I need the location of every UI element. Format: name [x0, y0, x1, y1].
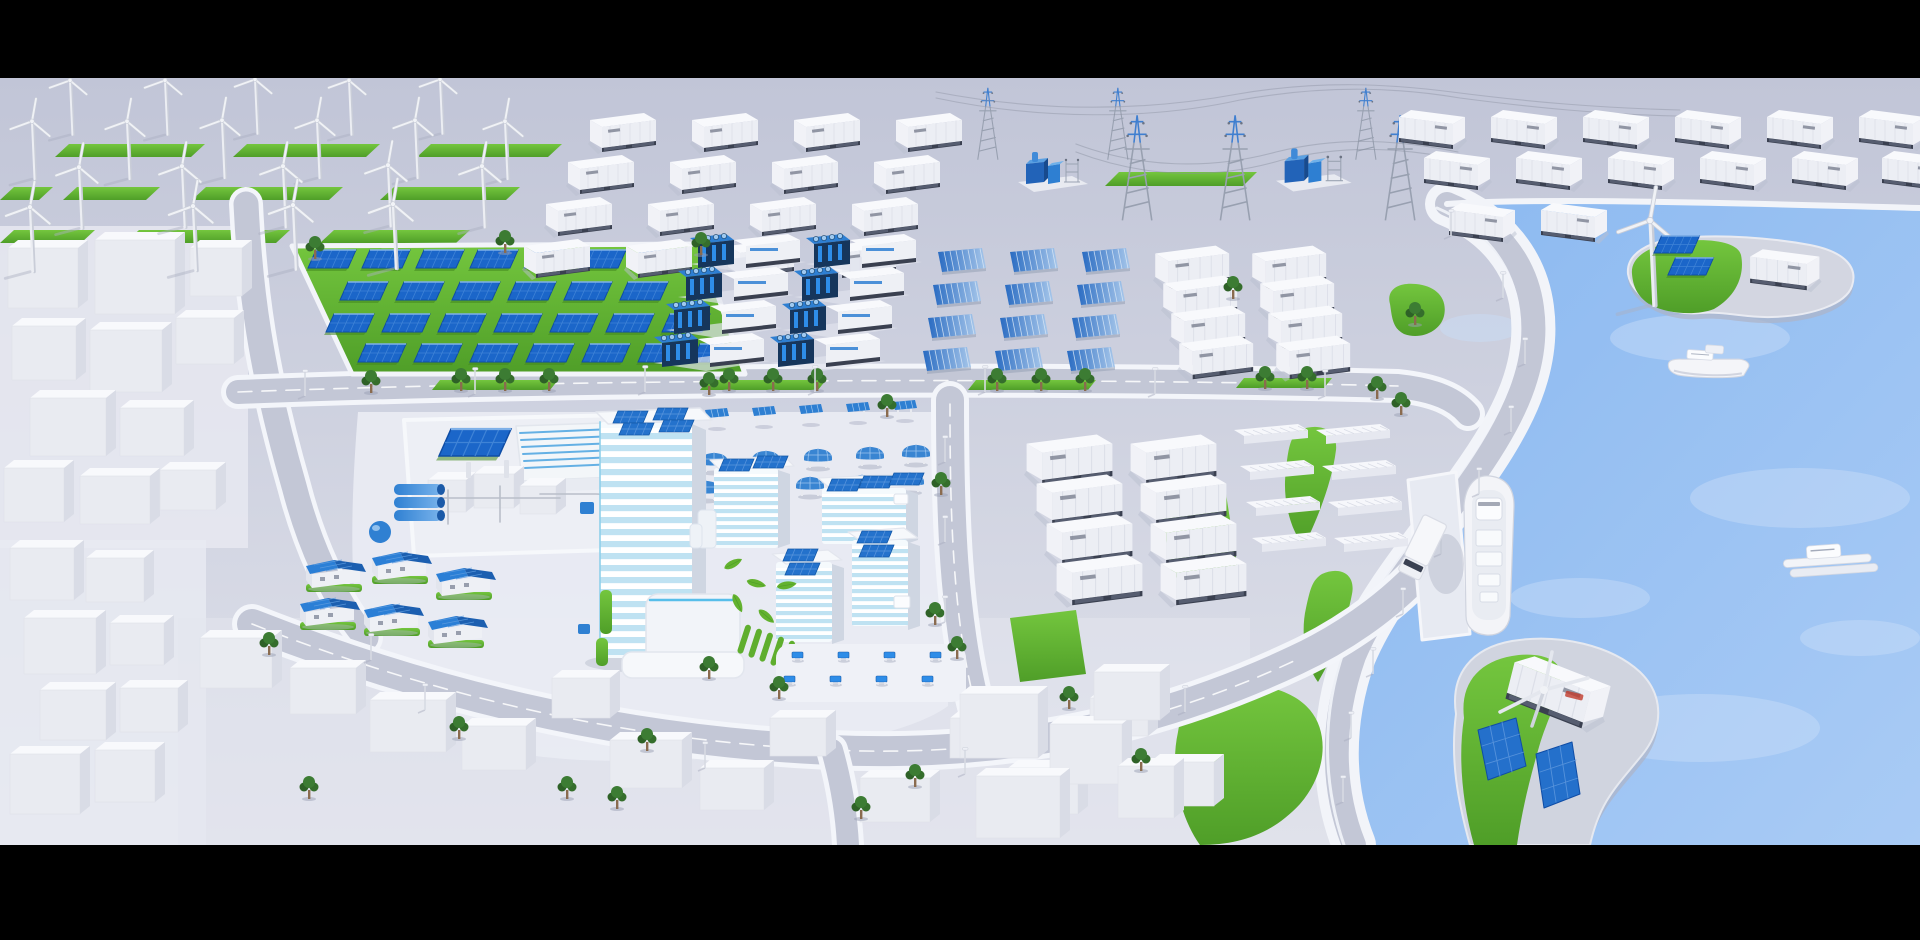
blue-panel-walls-item [1072, 314, 1120, 341]
tower-roof-solar-item [659, 420, 694, 432]
building2-roof-solar-item [753, 456, 788, 468]
tower-entrance [622, 652, 744, 678]
smart-city-render [0, 0, 1920, 940]
tower-roof-solar-item [653, 408, 688, 420]
picnic-tables-item [930, 652, 942, 663]
blue-panel-walls-item [995, 347, 1043, 374]
docked-ship-windows [1478, 502, 1500, 506]
island-south-turbine-hub [1540, 686, 1548, 694]
plant-tanks [394, 484, 442, 521]
building2-roof-solar-item [719, 459, 754, 471]
solar-dome-trees-item [856, 446, 884, 470]
plant-sphere-tank [369, 521, 391, 543]
building5-roofbox [894, 596, 910, 608]
docked-ship-bridge [1476, 498, 1502, 520]
blue-panel-walls-item [1005, 281, 1053, 308]
plant-tank-caps [437, 484, 445, 521]
blue-panel-walls-item [938, 248, 986, 275]
building5-roof-solar-item [857, 531, 892, 543]
picnic-tables-item [838, 652, 850, 663]
solar-dome-trees-item [902, 444, 930, 468]
building4-stripes [776, 568, 832, 639]
picnic-tables-item [922, 676, 934, 687]
building3-roofbox [894, 494, 908, 504]
building3-roof-solar-item [859, 476, 894, 488]
building4-side [832, 564, 844, 644]
building5-side [908, 542, 920, 630]
blue-panel-walls-item [1010, 248, 1058, 275]
scene-canvas [0, 78, 1920, 845]
building5-roof-solar-item [859, 545, 894, 557]
building3-roof-solar-item [889, 473, 924, 485]
tower-roof-solar-item [613, 411, 648, 423]
blue-panel-walls-item [1067, 347, 1115, 374]
solar-dome-trees-item [804, 448, 832, 472]
tower-roof-solar-item [619, 423, 654, 435]
blue-panel-walls-item [1077, 281, 1125, 308]
picnic-tables-item [792, 652, 804, 663]
blue-panel-walls-item [1000, 314, 1048, 341]
storage-yard-lawn-2 [1010, 610, 1086, 682]
building2-side [778, 470, 790, 548]
letterbox-top [0, 0, 1920, 78]
plant-sphere-highlight [372, 525, 380, 531]
blue-panel-walls-item [1082, 248, 1130, 275]
blue-panel-walls-item [928, 314, 976, 341]
picnic-tables-item [830, 676, 842, 687]
picnic-tables-item [876, 676, 888, 687]
building4-roof-solar-item [785, 563, 820, 575]
picnic-tables-item [884, 652, 896, 663]
building4-roof-solar-item [783, 549, 818, 561]
building3-roof-solar-item [827, 479, 862, 491]
building2-stripes [714, 474, 778, 545]
letterbox-bottom [0, 845, 1920, 940]
blue-panel-walls-item [923, 347, 971, 374]
blue-panel-walls-item [933, 281, 981, 308]
